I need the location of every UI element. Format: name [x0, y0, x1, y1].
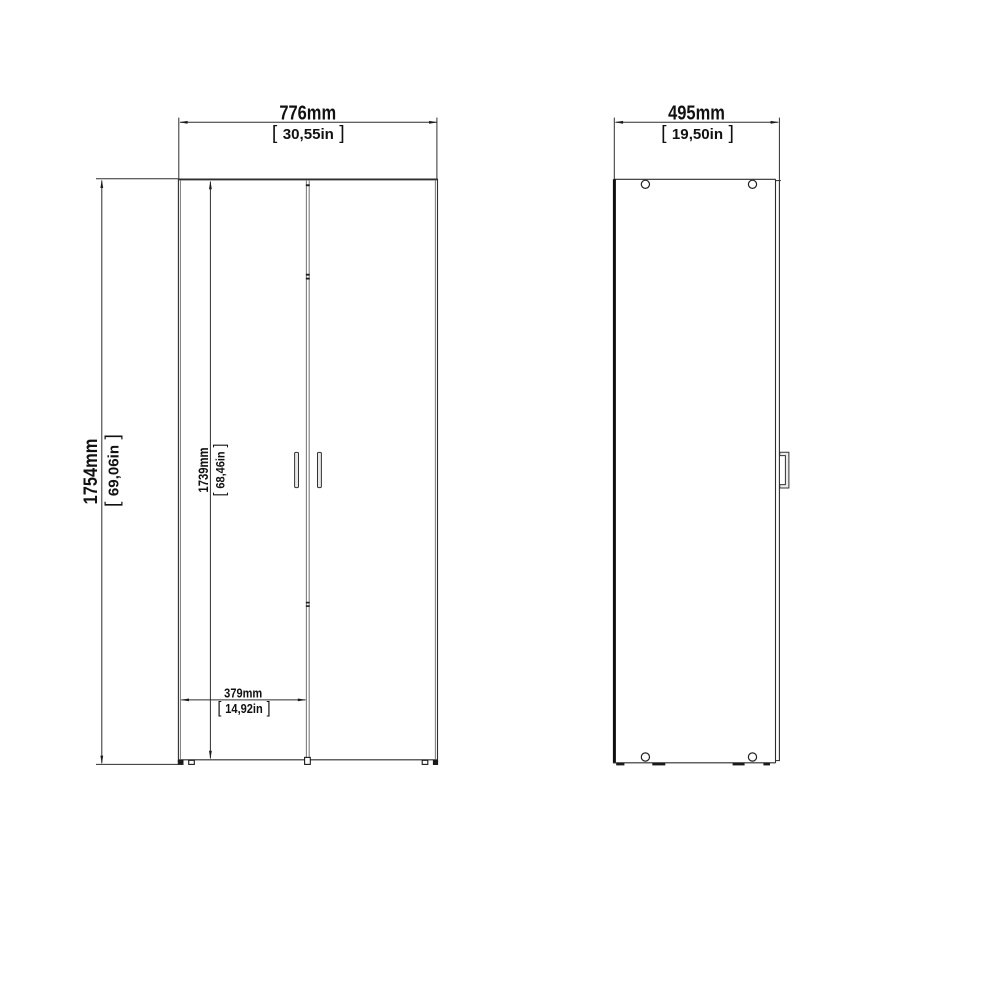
- svg-text:379mm: 379mm: [224, 686, 262, 701]
- svg-text:[ 19,50in ]: [ 19,50in ]: [661, 122, 734, 144]
- svg-text:[ 14,92in ]: [ 14,92in ]: [218, 699, 271, 717]
- svg-text:[ 30,55in ]: [ 30,55in ]: [272, 122, 345, 144]
- svg-text:1754mm: 1754mm: [80, 439, 102, 505]
- svg-text:495mm: 495mm: [668, 101, 725, 124]
- svg-text:776mm: 776mm: [279, 101, 336, 124]
- svg-text:[ 69,06in ]: [ 69,06in ]: [102, 434, 124, 507]
- svg-text:1739mm: 1739mm: [196, 447, 211, 492]
- svg-text:[ 68,46in ]: [ 68,46in ]: [212, 444, 229, 497]
